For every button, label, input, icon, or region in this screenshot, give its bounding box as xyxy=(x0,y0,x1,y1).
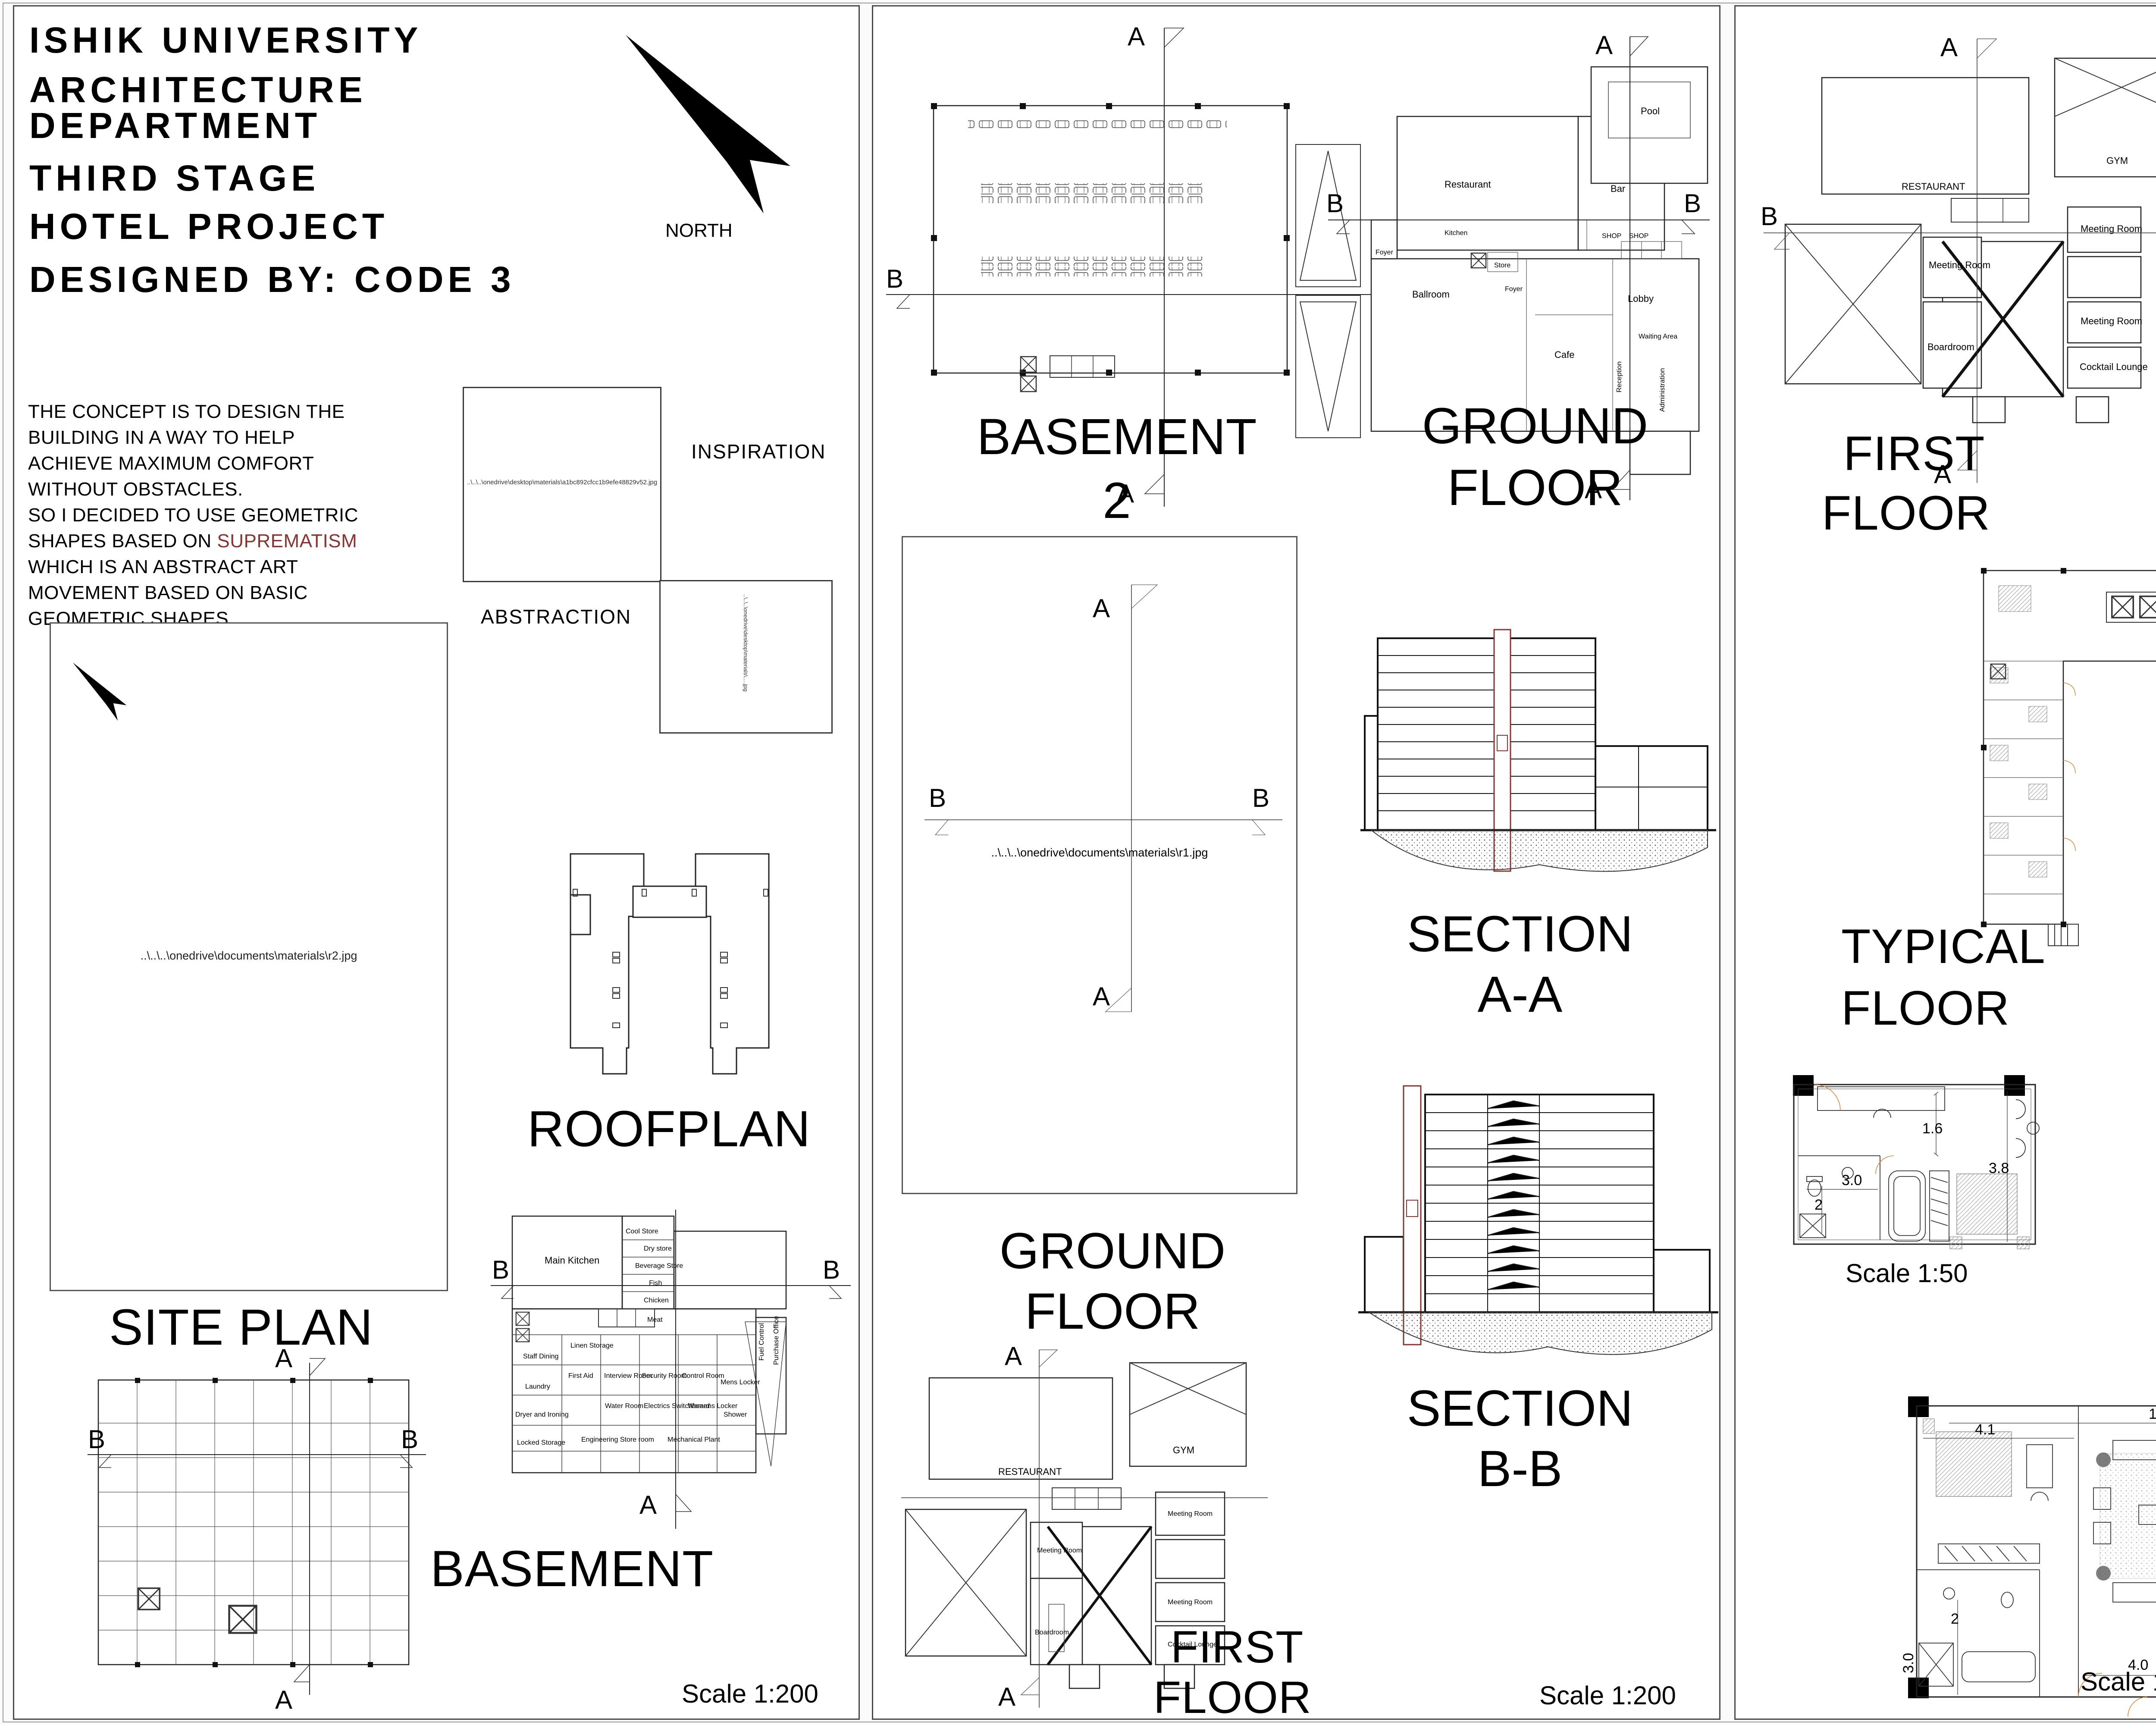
svg-text:Reception: Reception xyxy=(1616,361,1623,392)
svg-text:Meeting Room: Meeting Room xyxy=(1037,1547,1082,1554)
section-marker-b: B xyxy=(492,1255,509,1284)
svg-text:Cocktail Lounge: Cocktail Lounge xyxy=(2080,361,2148,372)
svg-text:Meat: Meat xyxy=(647,1316,663,1324)
svg-text:GYM: GYM xyxy=(2106,155,2128,166)
svg-text:Chicken: Chicken xyxy=(644,1297,669,1304)
section-marker-a: A xyxy=(1595,31,1613,60)
basement-lower-plan-drawing: B B A A xyxy=(85,1337,428,1714)
svg-text:Womens Locker: Womens Locker xyxy=(688,1402,738,1410)
svg-text:Mens Locker: Mens Locker xyxy=(721,1379,760,1386)
p3-first-floor-label-line2: FLOOR xyxy=(1822,485,1990,541)
section-marker-b: B xyxy=(1684,189,1701,218)
section-bb-drawing xyxy=(1354,1071,1723,1392)
first-floor-label-line2: FLOOR xyxy=(1153,1672,1312,1724)
svg-text:Foyer: Foyer xyxy=(1376,249,1394,256)
svg-text:2: 2 xyxy=(1814,1197,1823,1213)
svg-text:4.1: 4.1 xyxy=(1975,1421,1995,1438)
title-line-project: HOTEL PROJECT xyxy=(29,206,389,248)
title-line-department: DEPARTMENT xyxy=(29,105,321,147)
basement-plan-drawing: B B A Main Kitchen Cool Store Dry store … xyxy=(489,1192,853,1552)
svg-text:SHOP: SHOP xyxy=(1629,232,1648,240)
svg-text:Shower: Shower xyxy=(724,1411,747,1418)
svg-text:14.2: 14.2 xyxy=(2149,1406,2156,1422)
svg-text:SHOP: SHOP xyxy=(1602,232,1621,240)
section-marker-a: A xyxy=(1093,982,1110,1011)
site-plan-image-path: ..\..\..\onedrive\documents\materials\r2… xyxy=(51,949,447,963)
typical-floor-label-line1: TYPICAL xyxy=(1841,919,2046,974)
svg-text:Bar: Bar xyxy=(1611,183,1625,194)
svg-text:Ballroom: Ballroom xyxy=(1412,289,1450,300)
svg-text:Lobby: Lobby xyxy=(1628,293,1654,304)
svg-text:Store: Store xyxy=(1494,262,1510,269)
inspiration-image-path: ..\..\..\onedrive\desktop\materials\a1bc… xyxy=(464,479,660,486)
svg-text:Meeting Room: Meeting Room xyxy=(2081,316,2142,326)
title-line-designer: DESIGNED BY: CODE 3 xyxy=(29,259,515,301)
detail1-scale-label: Scale 1:50 xyxy=(1846,1258,1968,1288)
svg-text:Engineering Store room: Engineering Store room xyxy=(581,1436,654,1443)
roofplan-label: ROOFPLAN xyxy=(527,1100,811,1158)
north-arrow-icon xyxy=(618,32,816,222)
ground-mid-label-line1: GROUND xyxy=(929,1222,1296,1280)
site-plan-image-placeholder: ..\..\..\onedrive\documents\materials\r2… xyxy=(50,622,448,1291)
abstraction-image-path: ..\..\..\onedrive\desktop\materials\….jp… xyxy=(743,594,749,691)
svg-text:Cool Store: Cool Store xyxy=(626,1228,658,1235)
roofplan-drawing xyxy=(558,845,784,1080)
svg-text:3.8: 3.8 xyxy=(1989,1160,2009,1176)
p3-first-floor-label-line1: FIRST xyxy=(1843,426,1985,481)
concept-text-start: THE CONCEPT IS TO DESIGN THE BUILDING IN… xyxy=(28,401,358,552)
svg-text:Cafe: Cafe xyxy=(1554,349,1574,360)
svg-text:Dry store: Dry store xyxy=(644,1245,672,1252)
svg-text:First Aid: First Aid xyxy=(568,1372,593,1380)
section-aa-label-line2: A-A xyxy=(1369,965,1671,1024)
scale-label-1-200: Scale 1:200 xyxy=(1539,1681,1676,1710)
svg-text:Waiting Area: Waiting Area xyxy=(1639,333,1677,340)
svg-text:Foyer: Foyer xyxy=(1505,285,1523,293)
svg-text:Meeting Room: Meeting Room xyxy=(1168,1510,1213,1518)
section-marker-a: A xyxy=(639,1490,657,1519)
basement2-number: 2 xyxy=(899,471,1335,530)
detail-room-plan-drawing: 1.6 3.0 2 3.8 xyxy=(1781,1044,2050,1261)
inspiration-label: INSPIRATION xyxy=(691,440,826,463)
typical-floor-plan-drawing: Linen Storage Storage xyxy=(1964,553,2156,963)
svg-text:GYM: GYM xyxy=(1173,1445,1194,1455)
section-marker-a: A xyxy=(275,1344,292,1373)
svg-text:1.6: 1.6 xyxy=(1922,1120,1943,1137)
section-marker-a: A xyxy=(1940,33,1958,62)
abstraction-image-placeholder: ..\..\..\onedrive\desktop\materials\….jp… xyxy=(659,580,833,734)
title-line-university: ISHIK UNIVERSITY xyxy=(29,19,422,61)
svg-text:Linen Storage: Linen Storage xyxy=(570,1342,614,1349)
section-bb-label-line1: SECTION xyxy=(1369,1379,1671,1438)
section-bb-label-line2: B-B xyxy=(1369,1440,1671,1498)
basement2-label: BASEMENT xyxy=(899,408,1335,466)
section-aa-drawing xyxy=(1354,606,1723,910)
title-line-stage: THIRD STAGE xyxy=(29,157,320,199)
first-floor-label-line1: FIRST xyxy=(1171,1621,1304,1673)
svg-text:RESTAURANT: RESTAURANT xyxy=(1902,181,1965,192)
typical-floor-label-line2: FLOOR xyxy=(1841,980,2010,1036)
ground-floor-image-placeholder: A A B B ..\..\..\onedrive\documents\mate… xyxy=(902,536,1297,1194)
svg-text:Purchase Office: Purchase Office xyxy=(773,1316,780,1365)
detail-double-room-plan-drawing: 14.2 4.1 5.8 7.2 4.0 2 3.0 2 3.0 xyxy=(1897,1376,2156,1716)
north-label: NORTH xyxy=(665,220,733,241)
panel-plans-sections: B B A A BASEMENT 2 B B xyxy=(872,5,1720,1720)
section-marker-b: B xyxy=(1326,189,1344,218)
inspiration-image-placeholder: ..\..\..\onedrive\desktop\materials\a1bc… xyxy=(463,387,661,582)
section-marker-b: B xyxy=(1252,784,1269,812)
concept-paragraph: THE CONCEPT IS TO DESIGN THE BUILDING IN… xyxy=(28,373,464,632)
section-marker-a: A xyxy=(1093,594,1110,623)
detail3-scale-label: Scale 1:50 xyxy=(2081,1667,2156,1697)
ground-mid-label-line2: FLOOR xyxy=(929,1282,1296,1341)
svg-text:Mechanical Plant: Mechanical Plant xyxy=(667,1436,720,1443)
concept-highlight: SUPREMATISM xyxy=(217,530,357,552)
svg-text:Meeting Room: Meeting Room xyxy=(1929,260,1990,270)
svg-text:Dryer and Ironing: Dryer and Ironing xyxy=(515,1411,569,1418)
ground-floor-label-line2: FLOOR xyxy=(1352,458,1718,517)
abstraction-label: ABSTRACTION xyxy=(481,605,631,628)
panel-floors-details: B B A A RESTAURANT GYM Meeting Room Meet… xyxy=(1734,5,2156,1720)
svg-text:Staff Dining: Staff Dining xyxy=(523,1353,558,1360)
ground-floor-label-line1: GROUND xyxy=(1352,397,1718,455)
site-north-arrow-icon xyxy=(70,660,135,725)
section-marker-b: B xyxy=(886,264,903,293)
scale-label-1-200: Scale 1:200 xyxy=(682,1679,818,1709)
svg-text:Meeting Room: Meeting Room xyxy=(2081,223,2142,234)
ground-image-path: ..\..\..\onedrive\documents\materials\r1… xyxy=(991,846,1208,859)
svg-text:Fuel Control: Fuel Control xyxy=(758,1323,765,1361)
panel-title-site: ISHIK UNIVERSITY ARCHITECTURE DEPARTMENT… xyxy=(13,5,860,1720)
section-marker-b: B xyxy=(88,1425,105,1454)
section-marker-a: A xyxy=(275,1685,292,1714)
svg-text:3.0: 3.0 xyxy=(1900,1653,1917,1673)
section-marker-a: A xyxy=(1005,1342,1022,1371)
svg-text:Laundry: Laundry xyxy=(525,1383,550,1390)
svg-text:Boardroom: Boardroom xyxy=(1927,342,1974,352)
concept-text-end: WHICH IS AN ABSTRACT ART MOVEMENT BASED … xyxy=(28,556,308,629)
svg-text:Meeting Room: Meeting Room xyxy=(1168,1599,1213,1606)
section-marker-b: B xyxy=(401,1425,418,1454)
section-marker-a: A xyxy=(998,1682,1015,1711)
svg-text:Pool: Pool xyxy=(1641,106,1660,116)
basement-label: BASEMENT xyxy=(430,1540,714,1598)
svg-text:Fish: Fish xyxy=(649,1280,662,1287)
svg-text:Main Kitchen: Main Kitchen xyxy=(545,1255,599,1266)
section-marker-b: B xyxy=(1761,202,1778,231)
basement-room-labels: Main Kitchen Cool Store Dry store Bevera… xyxy=(515,1228,780,1446)
section-marker-b: B xyxy=(929,784,946,812)
svg-text:Restaurant: Restaurant xyxy=(1445,179,1491,190)
svg-text:3.0: 3.0 xyxy=(1842,1172,1862,1189)
svg-text:Control Room: Control Room xyxy=(682,1372,724,1380)
section-marker-b: B xyxy=(823,1255,840,1284)
svg-text:Beverage Store: Beverage Store xyxy=(635,1262,683,1270)
svg-text:Water Room: Water Room xyxy=(605,1402,643,1410)
svg-text:RESTAURANT: RESTAURANT xyxy=(998,1466,1062,1477)
presentation-board: ISHIK UNIVERSITY ARCHITECTURE DEPARTMENT… xyxy=(0,0,2156,1725)
svg-text:Kitchen: Kitchen xyxy=(1445,229,1467,237)
svg-text:Security Room: Security Room xyxy=(642,1372,687,1380)
svg-text:Boardroom: Boardroom xyxy=(1035,1629,1069,1636)
svg-text:2: 2 xyxy=(1951,1611,1959,1627)
section-marker-a: A xyxy=(1128,22,1145,51)
section-aa-label-line1: SECTION xyxy=(1369,905,1671,963)
svg-text:Locked Storage: Locked Storage xyxy=(517,1439,565,1446)
